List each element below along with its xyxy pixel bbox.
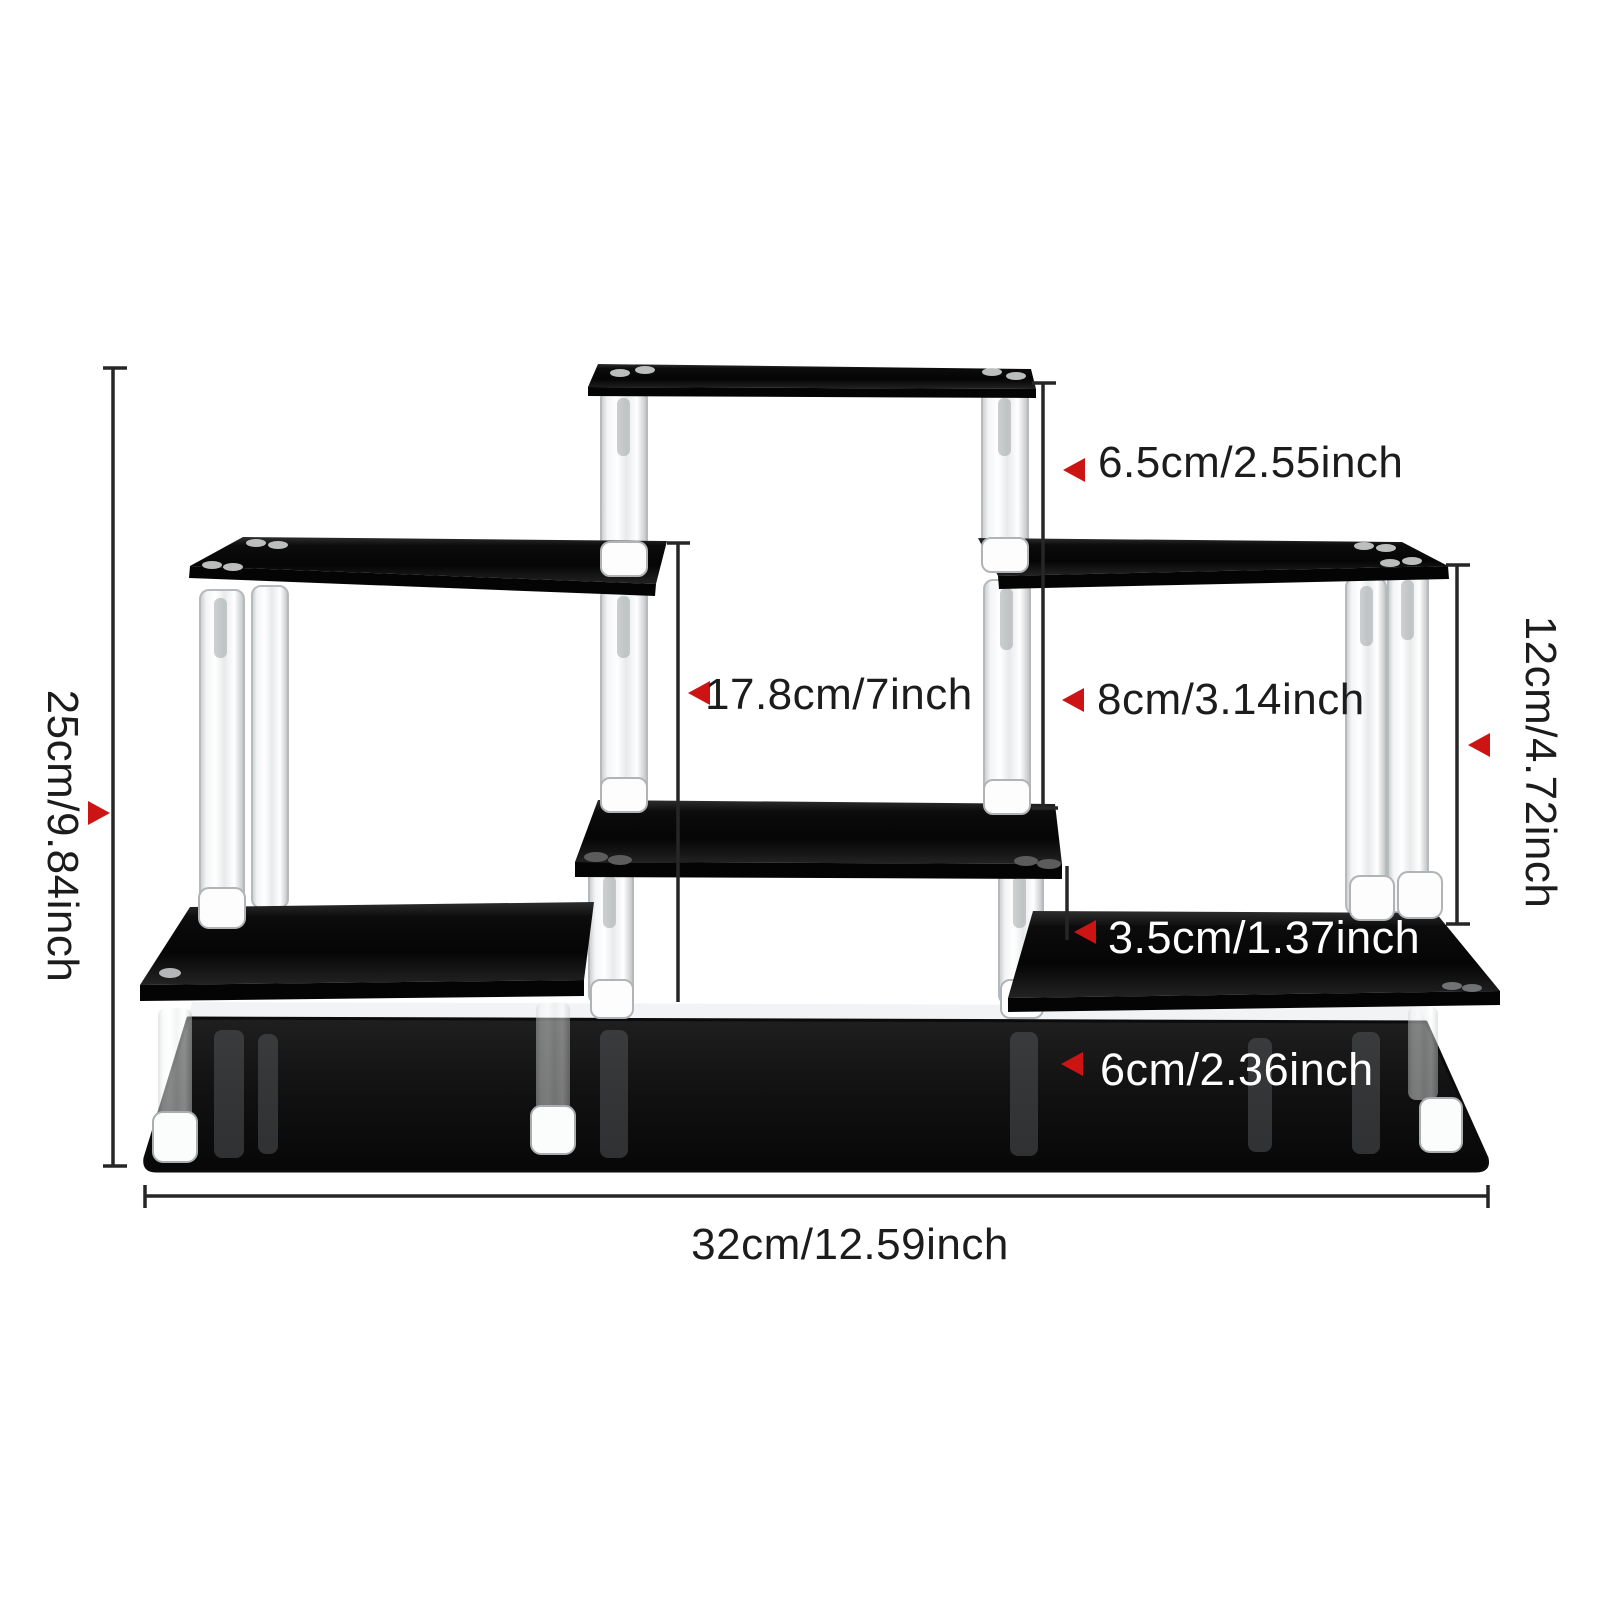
left-big-shelf <box>140 888 594 1001</box>
screw-mark <box>1014 856 1038 866</box>
pillar-rod <box>214 598 227 658</box>
screw-mark <box>268 541 288 549</box>
red-arrow-left-icon <box>1062 688 1084 712</box>
red-arrow-right-icon <box>88 801 110 825</box>
screw-mark <box>608 855 632 865</box>
red-arrow-left-icon <box>1468 733 1490 757</box>
middle-shelf <box>575 778 1062 879</box>
label-base-height: 6cm/2.36inch <box>1100 1044 1374 1095</box>
pillar-rod <box>998 398 1011 456</box>
base-reflection <box>600 1030 628 1158</box>
screw-mark <box>1402 557 1422 565</box>
pillar-foot <box>601 778 647 812</box>
pillar-rod <box>1401 580 1414 640</box>
screw-mark <box>1380 559 1400 567</box>
pillar-rod <box>617 398 630 456</box>
pillar-foot-dim <box>158 1008 192 1120</box>
top-shelf-top <box>588 364 1036 389</box>
pillar-foot <box>1420 1098 1462 1152</box>
base-reflection <box>214 1030 244 1158</box>
pillar-foot <box>153 1112 197 1162</box>
label-top-riser-height: 6.5cm/2.55inch <box>1098 438 1403 487</box>
screw-mark <box>982 368 1002 376</box>
base-reflection <box>1010 1032 1038 1156</box>
screw-mark <box>635 366 655 374</box>
pillar-rod <box>1013 876 1026 928</box>
screw-mark <box>159 968 181 978</box>
screw-mark <box>1354 542 1374 550</box>
pillar-rod <box>1000 588 1013 650</box>
label-right-riser-height: 8cm/3.14inch <box>1097 675 1365 724</box>
base-reflection <box>258 1034 278 1154</box>
screw-mark <box>584 852 608 862</box>
label-left-column-height: 17.8cm/7inch <box>705 670 973 719</box>
red-arrow-left-icon <box>1063 458 1085 482</box>
screw-mark <box>223 563 243 571</box>
pillar-rod <box>1360 586 1373 646</box>
pillar-rod <box>603 876 616 928</box>
pillar-rod <box>617 596 630 658</box>
pillar-foot <box>531 1106 575 1154</box>
screw-mark <box>1462 984 1482 992</box>
screw-mark <box>246 539 266 547</box>
stand-diagram-canvas: 6.5cm/2.55inch 17.8cm/7inch 8cm/3.14inch… <box>0 0 1600 1600</box>
pillar-foot-dim <box>1408 1006 1438 1100</box>
pillar-foot <box>984 780 1030 814</box>
pillar-foot <box>591 980 633 1018</box>
top-shelf <box>588 364 1036 398</box>
product-dimension-diagram: 6.5cm/2.55inch 17.8cm/7inch 8cm/3.14inch… <box>0 0 1600 1600</box>
pillar-foot-dim <box>536 1002 570 1112</box>
label-total-width: 32cm/12.59inch <box>691 1220 1009 1269</box>
label-total-height: 25cm/9.84inch <box>38 690 87 983</box>
middle-shelf-front <box>575 862 1062 879</box>
screw-mark <box>202 561 222 569</box>
screw-mark <box>1006 372 1026 380</box>
pillar-left-back <box>252 586 288 908</box>
screw-mark <box>1442 982 1462 990</box>
screw-mark <box>1376 544 1396 552</box>
pillar-foot <box>982 538 1028 572</box>
pillar-foot <box>601 542 647 576</box>
label-lower-right-step-height: 3.5cm/1.37inch <box>1108 912 1420 963</box>
screw-mark <box>1037 859 1061 869</box>
pillar-foot <box>199 888 245 928</box>
label-right-column-height: 12cm/4.72inch <box>1516 616 1565 909</box>
screw-mark <box>610 369 630 377</box>
